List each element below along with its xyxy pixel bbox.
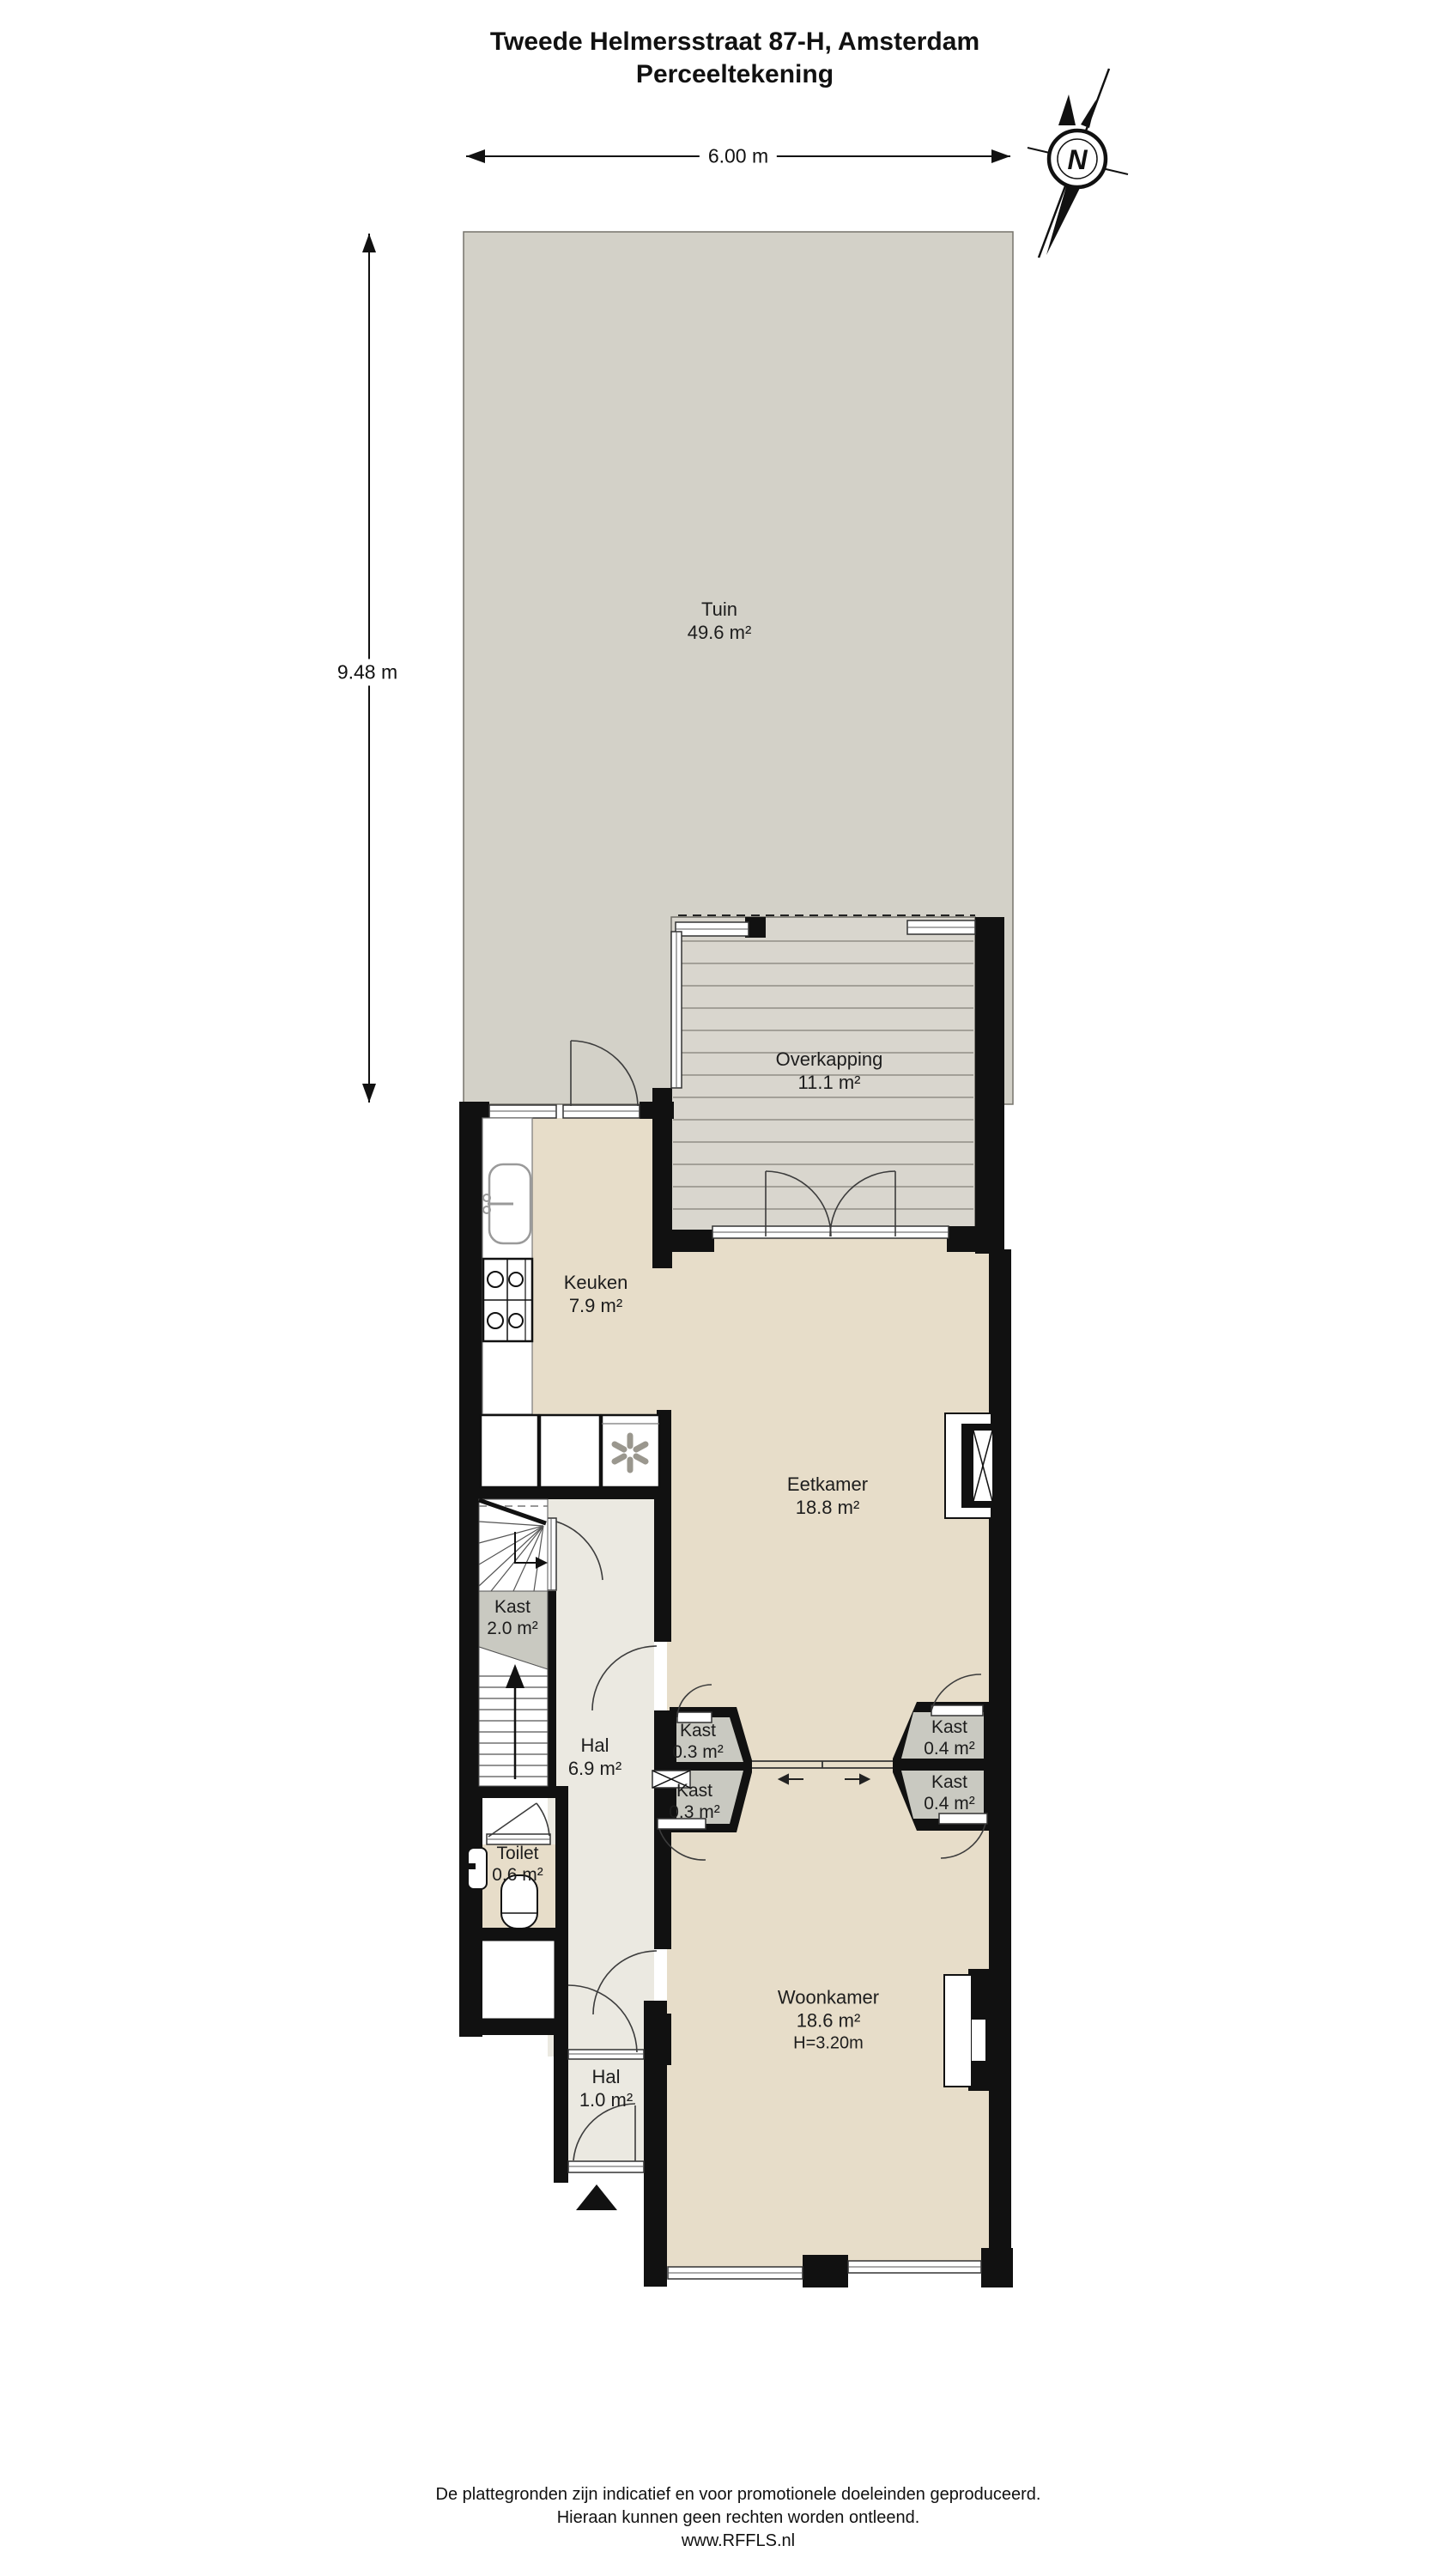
room-label-kast-links-2: Kast 0.3 m² <box>669 1780 720 1823</box>
compass-north-label: N <box>1067 144 1088 175</box>
compass-icon: N <box>1028 69 1128 258</box>
room-label-kast-links-1: Kast 0.3 m² <box>672 1720 724 1763</box>
room-label-eetkamer: Eetkamer 18.8 m² <box>787 1473 868 1519</box>
entrance-arrow-icon <box>576 2184 617 2210</box>
room-area: 0.3 m² <box>672 1741 724 1763</box>
dimension-depth-label: 9.48 m <box>329 659 406 686</box>
room-name: Overkapping <box>776 1048 883 1071</box>
disclaimer-website: www.RFFLS.nl <box>436 2530 1041 2553</box>
title-address: Tweede Helmersstraat 87-H, Amsterdam <box>490 26 979 58</box>
room-label-toilet: Toilet 0.6 m² <box>492 1843 543 1886</box>
room-name: Kast <box>669 1780 720 1801</box>
room-area: 0.4 m² <box>924 1793 975 1814</box>
room-name: Kast <box>487 1596 538 1618</box>
room-name: Eetkamer <box>787 1473 868 1496</box>
room-label-tuin: Tuin 49.6 m² <box>688 598 752 644</box>
room-label-overkapping: Overkapping 11.1 m² <box>776 1048 883 1094</box>
room-area: 0.6 m² <box>492 1864 543 1886</box>
room-name: Kast <box>672 1720 724 1741</box>
room-ceiling-height: H=3.20m <box>778 2032 879 2056</box>
disclaimer-line-2: Hieraan kunnen geen rechten worden ontle… <box>436 2506 1041 2530</box>
room-label-woonkamer: Woonkamer 18.6 m² H=3.20m <box>778 1986 879 2056</box>
room-area: 18.6 m² <box>778 2009 879 2032</box>
room-area: 7.9 m² <box>564 1294 628 1317</box>
title-subtitle: Perceeltekening <box>490 58 979 91</box>
room-name: Hal <box>579 2065 633 2088</box>
disclaimer-line-1: De plattegronden zijn indicatief en voor… <box>436 2483 1041 2506</box>
room-label-kast-rechts-2: Kast 0.4 m² <box>924 1771 975 1814</box>
floor-plan-page: N Tweede Helmersstraat 87-H, Amsterdam P… <box>0 0 1449 2576</box>
stove-icon <box>483 1259 532 1341</box>
room-name: Toilet <box>492 1843 543 1864</box>
room-area: 49.6 m² <box>688 621 752 644</box>
room-name: Kast <box>924 1716 975 1738</box>
dimension-width-label: 6.00 m <box>700 143 777 170</box>
room-name: Hal <box>568 1734 621 1757</box>
room-area: 11.1 m² <box>776 1071 883 1094</box>
room-area: 0.3 m² <box>669 1801 720 1823</box>
room-name: Woonkamer <box>778 1986 879 2009</box>
disclaimer: De plattegronden zijn indicatief en voor… <box>436 2483 1041 2553</box>
room-name: Kast <box>924 1771 975 1793</box>
room-name: Keuken <box>564 1271 628 1294</box>
room-area: 1.0 m² <box>579 2088 633 2111</box>
room-label-kast-trap: Kast 2.0 m² <box>487 1596 538 1639</box>
room-area: 0.4 m² <box>924 1738 975 1759</box>
room-label-hal-entree: Hal 1.0 m² <box>579 2065 633 2111</box>
flue-woonkamer <box>944 1969 1004 2091</box>
staircase <box>479 1499 548 1786</box>
room-label-keuken: Keuken 7.9 m² <box>564 1271 628 1317</box>
room-area: 6.9 m² <box>568 1757 621 1780</box>
room-name: Tuin <box>688 598 752 621</box>
floor-plan-drawing: N <box>0 0 1449 2576</box>
room-area: 18.8 m² <box>787 1496 868 1519</box>
room-label-hal: Hal 6.9 m² <box>568 1734 621 1780</box>
flue-eetkamer <box>945 1413 1003 1518</box>
page-title: Tweede Helmersstraat 87-H, Amsterdam Per… <box>490 26 979 91</box>
room-area: 2.0 m² <box>487 1618 538 1639</box>
room-label-kast-rechts-1: Kast 0.4 m² <box>924 1716 975 1759</box>
